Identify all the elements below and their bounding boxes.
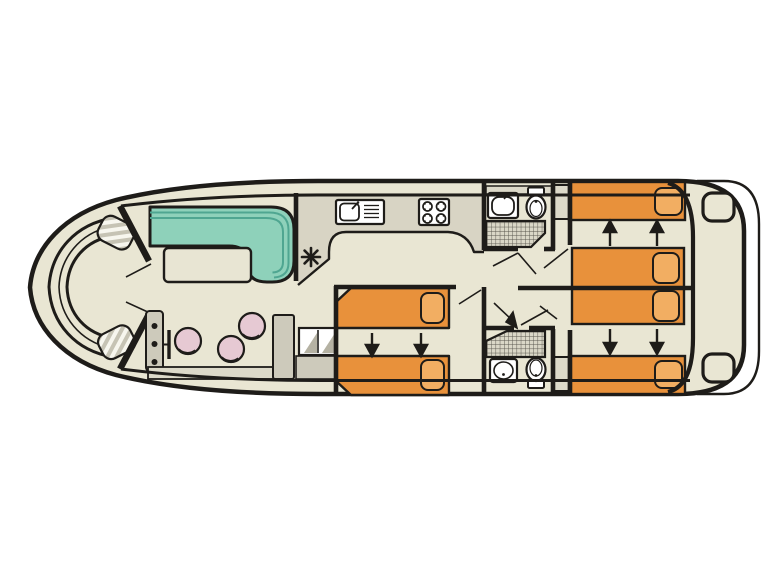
toilet-forward <box>527 188 546 219</box>
pillow <box>421 360 444 390</box>
saloon-table <box>164 248 251 282</box>
washbasin-aft <box>490 359 517 382</box>
pillow <box>655 188 682 215</box>
boat-deck-plan-canvas <box>0 0 768 576</box>
stool-3 <box>239 313 265 339</box>
hob-burner-1 <box>423 202 432 211</box>
cabinet <box>273 315 294 379</box>
stern-step-bottom <box>703 354 734 382</box>
stove-hob <box>419 199 449 225</box>
companionway-steps <box>299 328 337 355</box>
stern-step-top <box>703 193 734 221</box>
sink-unit <box>336 200 384 224</box>
shower-forward <box>486 221 545 247</box>
deck-plan-drawing <box>0 0 768 576</box>
heater-symbol <box>302 248 320 266</box>
hob-burner-2 <box>437 202 446 211</box>
helm-gauge-2 <box>152 341 158 347</box>
hob-burner-3 <box>423 214 432 223</box>
pillow <box>421 293 444 323</box>
pillow <box>653 291 679 321</box>
hob-burner-4 <box>437 214 446 223</box>
side-deck-landing <box>296 356 336 379</box>
helm-gauge-1 <box>152 323 158 329</box>
stool-2 <box>218 336 244 362</box>
toilet-aft <box>527 358 546 388</box>
pillow <box>655 361 682 388</box>
stool-1 <box>175 328 201 354</box>
pillow <box>653 253 679 283</box>
helm-gauge-3 <box>152 359 158 365</box>
